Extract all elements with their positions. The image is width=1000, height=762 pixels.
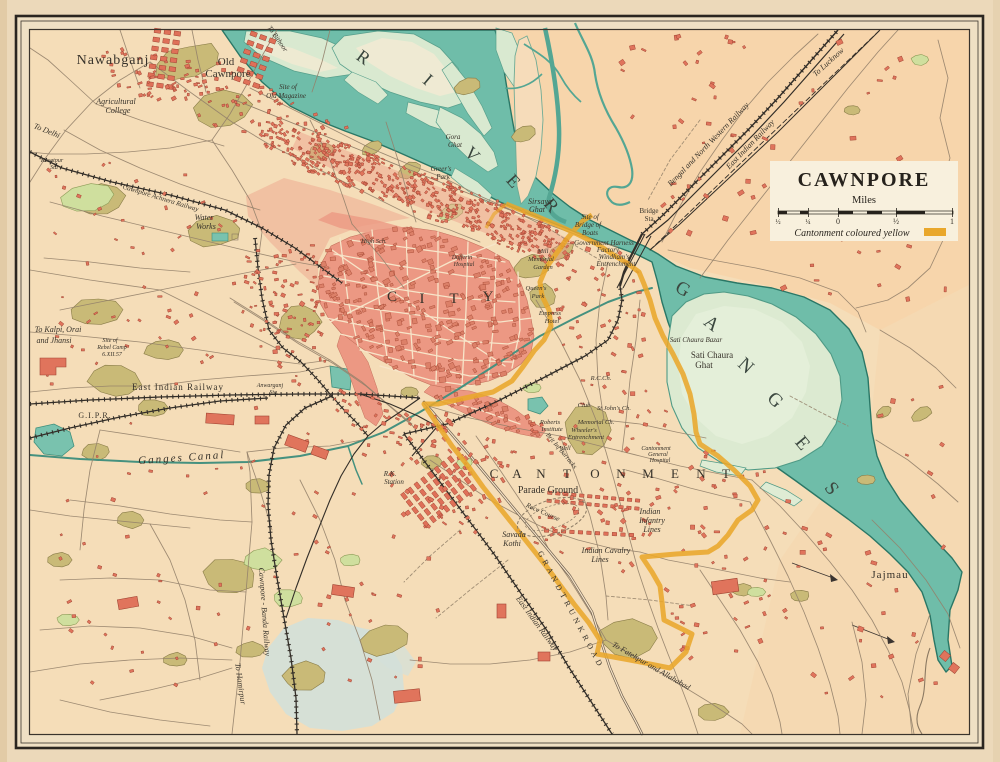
svg-text:CAWNPORE: CAWNPORE [798, 169, 931, 191]
svg-text:Old: Old [218, 56, 235, 68]
svg-text:Entrenchment: Entrenchment [567, 434, 604, 441]
svg-text:and Jhansi: and Jhansi [37, 336, 72, 345]
svg-text:Site of: Site of [102, 337, 118, 344]
svg-text:Site of: Site of [279, 83, 298, 91]
svg-text:To Kalpi, Orai: To Kalpi, Orai [35, 325, 82, 334]
svg-text:Entrenchment: Entrenchment [595, 260, 636, 268]
svg-text:C: C [387, 289, 397, 305]
svg-text:1: 1 [950, 217, 954, 226]
svg-text:Agricultural: Agricultural [95, 97, 136, 106]
svg-text:St John's Ch.: St John's Ch. [597, 405, 631, 412]
svg-text:Anwarganj: Anwarganj [256, 383, 284, 389]
svg-text:Station: Station [384, 478, 404, 486]
svg-text:Nawabganj: Nawabganj [77, 53, 150, 68]
svg-text:N: N [616, 466, 626, 481]
svg-text:Queen's: Queen's [526, 285, 547, 292]
svg-text:Park: Park [435, 173, 451, 181]
svg-text:T: T [563, 466, 571, 481]
svg-text:O: O [590, 466, 599, 481]
svg-text:High Sch.: High Sch. [360, 238, 387, 245]
svg-text:Greer's: Greer's [431, 165, 452, 173]
svg-text:Empress: Empress [538, 310, 562, 317]
svg-text:Rebel Camp: Rebel Camp [96, 345, 127, 351]
svg-text:Roberts: Roberts [539, 419, 561, 426]
svg-text:Sta.: Sta. [269, 390, 278, 396]
svg-text:M: M [642, 466, 654, 481]
svg-text:College: College [106, 106, 131, 115]
svg-text:Lines: Lines [642, 525, 660, 534]
svg-text:Kothi: Kothi [502, 539, 521, 548]
svg-text:Indian: Indian [639, 507, 661, 516]
svg-text:T: T [449, 291, 458, 307]
svg-text:Club: Club [578, 402, 591, 409]
svg-text:Works: Works [196, 222, 216, 231]
svg-text:Cawnpore: Cawnpore [205, 68, 250, 80]
svg-text:Hotel: Hotel [544, 318, 560, 325]
svg-text:½: ½ [775, 218, 780, 226]
svg-text:Parade Ground: Parade Ground [518, 485, 578, 496]
svg-text:Dufferin: Dufferin [451, 254, 472, 261]
svg-text:Institute: Institute [540, 426, 562, 433]
svg-text:Sta: Sta [50, 165, 58, 171]
svg-text:Ghat: Ghat [448, 141, 463, 149]
svg-text:N: N [696, 466, 706, 481]
svg-text:0: 0 [836, 217, 840, 226]
svg-text:Infantry: Infantry [638, 516, 665, 525]
svg-text:Park: Park [531, 293, 545, 300]
svg-text:Kasatpur: Kasatpur [40, 158, 64, 164]
svg-text:Memorial: Memorial [527, 256, 554, 263]
svg-text:R.K.: R.K. [383, 470, 397, 478]
svg-text:Cantonment coloured yellow: Cantonment coloured yellow [794, 228, 909, 239]
svg-text:Old Magazine: Old Magazine [266, 92, 306, 100]
svg-text:East Indian Railway: East Indian Railway [132, 382, 224, 392]
svg-text:Boats: Boats [582, 229, 598, 237]
svg-text:Miles: Miles [852, 195, 876, 206]
svg-text:I: I [420, 291, 425, 307]
svg-text:Memorial Ch.: Memorial Ch. [577, 419, 615, 426]
svg-text:Wheeler's: Wheeler's [571, 427, 597, 434]
svg-text:Gora: Gora [446, 133, 461, 141]
svg-text:Lines: Lines [590, 555, 608, 564]
svg-text:Hospital: Hospital [453, 262, 475, 268]
svg-text:Ghat: Ghat [529, 205, 546, 214]
svg-text:G.I.P.R.: G.I.P.R. [78, 411, 111, 420]
svg-text:Water: Water [195, 213, 215, 222]
svg-text:Savada: Savada [502, 530, 526, 539]
svg-text:T: T [722, 466, 730, 481]
svg-text:Sati Chaura Bazar: Sati Chaura Bazar [670, 336, 723, 344]
svg-text:Ghat: Ghat [695, 360, 713, 370]
svg-text:Bridge of: Bridge of [575, 221, 602, 229]
svg-text:Jajmau: Jajmau [871, 569, 908, 581]
svg-text:Y: Y [483, 289, 494, 305]
svg-text:Sta.: Sta. [645, 215, 656, 223]
svg-text:Bridge: Bridge [639, 207, 658, 215]
svg-text:Mill: Mill [537, 248, 549, 255]
svg-text:E: E [671, 466, 679, 481]
svg-text:C: C [490, 466, 499, 481]
svg-text:Sati Chaura: Sati Chaura [691, 350, 733, 360]
svg-text:Indian Cavalry: Indian Cavalry [581, 546, 631, 555]
svg-text:Garden: Garden [533, 264, 553, 271]
svg-text:6.XII.57: 6.XII.57 [102, 352, 123, 358]
svg-text:¼: ¼ [805, 218, 810, 226]
svg-text:R.C.Ch.: R.C.Ch. [590, 375, 612, 382]
svg-text:A: A [512, 466, 522, 481]
svg-text:Hospital: Hospital [649, 458, 671, 464]
svg-text:N: N [536, 466, 546, 481]
svg-text:½: ½ [893, 217, 899, 226]
svg-text:Site of: Site of [581, 213, 600, 221]
